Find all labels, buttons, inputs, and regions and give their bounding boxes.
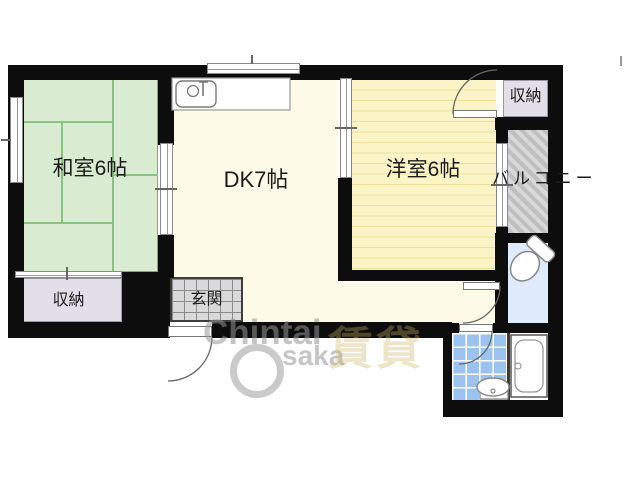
- room-toilet: [503, 243, 548, 323]
- window-tick: [66, 267, 68, 280]
- wall-washroom-top-a: [452, 323, 459, 333]
- wall-wing-bottom: [443, 400, 563, 417]
- label-washitsu: 和室6帖: [30, 157, 150, 180]
- label-balcony: バルコニー: [492, 170, 597, 189]
- door-storage-top: [453, 110, 497, 118]
- room-bath: [510, 333, 548, 400]
- wall-washroom-top-b: [493, 323, 548, 333]
- door-toilet: [463, 282, 500, 290]
- tatami-grid-line: [17, 121, 113, 123]
- closet-sliding-door: [15, 271, 122, 278]
- window-tick: [1, 139, 11, 141]
- label-storage-bottom: 収納: [15, 292, 122, 310]
- window-tick: [620, 56, 622, 66]
- label-dk: DK7帖: [196, 168, 316, 192]
- wall-washitsu-dk-upper: [158, 65, 174, 145]
- label-genkan: 玄関: [170, 291, 243, 309]
- door-washroom: [459, 324, 493, 332]
- wall-dk-yoshitsu: [338, 178, 352, 281]
- label-storage-top: 収納: [503, 88, 548, 106]
- watermark-circle: [230, 344, 284, 398]
- window-tick: [155, 188, 177, 190]
- window-kitchen: [207, 63, 300, 74]
- window-left-wall: [10, 97, 23, 183]
- window-tick: [251, 55, 253, 64]
- window-tick: [335, 127, 357, 129]
- tatami-grid-line: [17, 222, 113, 224]
- wall-genkan-block: [122, 272, 170, 338]
- room-washroom: [452, 333, 507, 400]
- wall-yoshitsu-bottom: [352, 270, 508, 281]
- label-yoshitsu: 洋室6帖: [363, 158, 483, 181]
- floor-plan: 和室6帖 DK7帖 洋室6帖 収納 バルコニー 収納 玄関 Chintai sa…: [0, 0, 640, 480]
- wall-right: [548, 65, 563, 417]
- wall-washroom-bath-divider: [507, 333, 510, 400]
- watermark-text-chintai-cjk: 賃貸: [328, 312, 424, 377]
